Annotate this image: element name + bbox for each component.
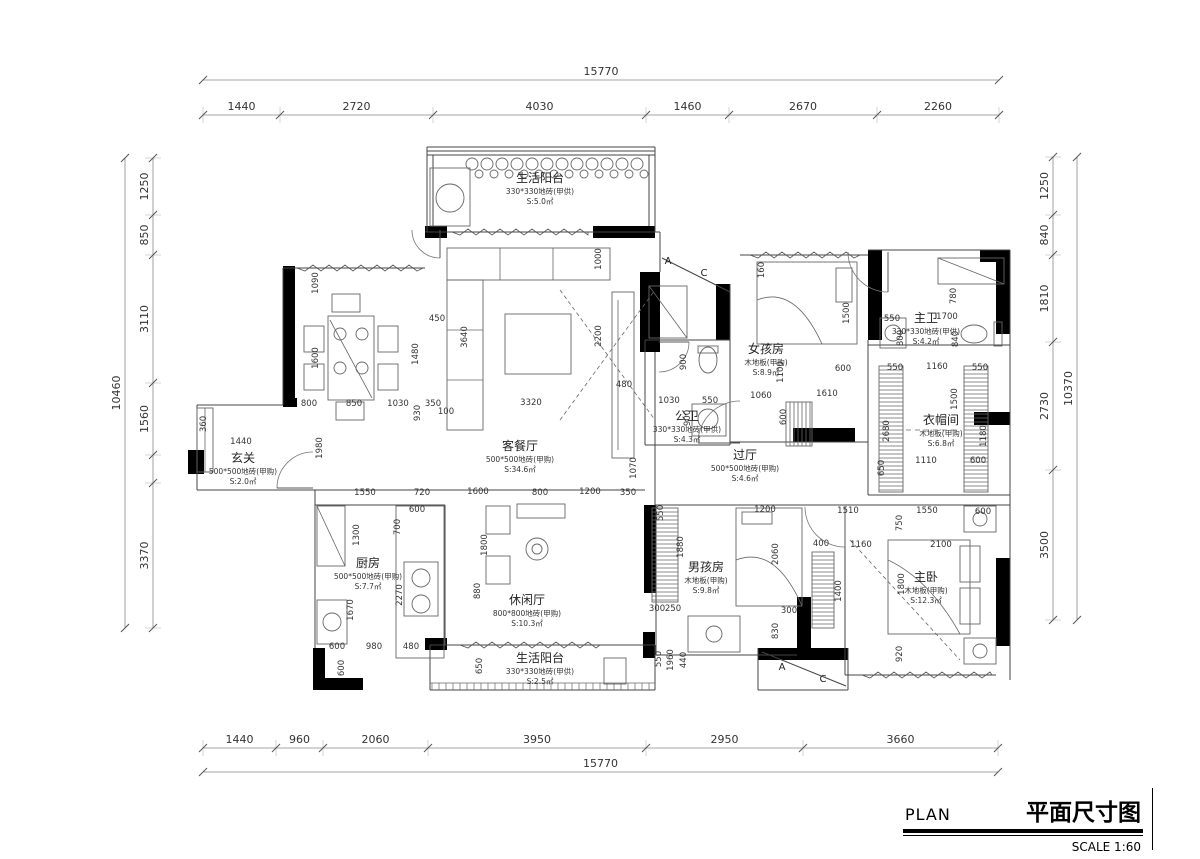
- dim-label: 1250: [1038, 172, 1051, 200]
- dim-label: 600: [329, 642, 345, 652]
- dim-label: 2680: [882, 420, 892, 442]
- furniture: [332, 294, 360, 312]
- furniture: [334, 362, 346, 374]
- dim-label: 1670: [346, 599, 356, 621]
- door-arc: [698, 401, 740, 443]
- room-finish: 330*330地砖(甲供): [506, 666, 574, 676]
- room-label: 客餐厅500*500地砖(甲购)S:34.6㎡: [486, 438, 554, 474]
- dim-label: 920: [895, 646, 905, 662]
- room-area: S:9.8㎡: [693, 586, 720, 595]
- scale-label: SCALE 1:60: [903, 840, 1143, 854]
- dim-label: 800: [301, 399, 317, 409]
- furniture: [496, 158, 508, 170]
- furniture: [486, 506, 510, 534]
- furniture: [836, 268, 852, 302]
- furniture: [532, 544, 542, 554]
- dim-label: 1200: [754, 505, 776, 515]
- dim-label: 1560: [138, 405, 151, 433]
- furniture: [447, 248, 610, 280]
- dim-label: 830: [771, 623, 781, 639]
- dim-label: 2670: [789, 100, 817, 113]
- dim-label: 2060: [362, 733, 390, 746]
- furniture: [556, 158, 568, 170]
- dim-label: 1200: [579, 487, 601, 497]
- dim-label: 1600: [467, 487, 489, 497]
- room-area: S:2.0㎡: [230, 477, 257, 486]
- dim-label: 2200: [594, 325, 604, 347]
- dim-label: 1550: [916, 506, 938, 516]
- dim-label: 1060: [750, 391, 772, 401]
- section-mark: A: [665, 256, 672, 267]
- room-name: 衣帽间: [923, 412, 959, 427]
- room-area: S:5.0㎡: [527, 197, 554, 206]
- dim-label: 600: [409, 505, 425, 515]
- dim-label: 1300: [352, 524, 362, 546]
- dim-label: 360: [199, 416, 209, 432]
- dim-label: 15770: [584, 65, 619, 78]
- room-finish: 330*330地砖(甲供): [506, 186, 574, 196]
- furniture: [610, 170, 618, 178]
- furniture: [964, 638, 996, 664]
- dim-label: 980: [366, 642, 382, 652]
- dim-label: 2720: [343, 100, 371, 113]
- room-finish: 500*500地砖(甲购): [486, 454, 554, 464]
- dim-label: 300: [649, 604, 665, 614]
- dim-label: 1500: [950, 388, 960, 410]
- room-finish: 木地板(甲购): [684, 575, 727, 585]
- room-name: 生活阳台: [516, 650, 564, 665]
- furniture: [486, 556, 510, 584]
- room-finish: 500*500地砖(甲购): [209, 466, 277, 476]
- dim-label: 1800: [897, 573, 907, 595]
- dim-chain-bottom: 1440960206039502950366015770: [199, 733, 1002, 776]
- dim-label: 3110: [138, 305, 151, 333]
- furniture: [812, 552, 834, 628]
- dim-label: 550: [656, 505, 666, 521]
- room-label: 衣帽间木地板(甲购)S:6.8㎡: [919, 412, 962, 448]
- dim-label: 3370: [138, 542, 151, 570]
- room-area: S:10.3㎡: [511, 619, 543, 628]
- room-label: 生活阳台330*330地砖(甲供)S:2.5㎡: [506, 650, 574, 686]
- furniture: [396, 506, 444, 658]
- dim-label: 1960: [666, 649, 676, 671]
- furniture: [404, 562, 438, 616]
- dim-label: 2730: [1038, 392, 1051, 420]
- furniture: [526, 538, 548, 560]
- dim-label: 1250: [138, 173, 151, 201]
- wall: [325, 678, 363, 690]
- dim-label: 720: [414, 488, 430, 498]
- wall: [797, 597, 811, 650]
- furniture: [625, 170, 633, 178]
- dim-label: 1880: [676, 536, 686, 558]
- wall: [313, 648, 325, 690]
- room-name: 男孩房: [688, 559, 724, 574]
- dim-label: 650: [475, 658, 485, 674]
- dim-label: 780: [949, 288, 959, 304]
- dim-label: 600: [779, 409, 789, 425]
- dim-label: 2270: [395, 584, 405, 606]
- dim-label: 1070: [629, 457, 639, 479]
- dim-label: 1440: [228, 100, 256, 113]
- dim-label: 2260: [924, 100, 952, 113]
- furniture: [505, 314, 571, 374]
- dim-label: 350: [620, 488, 636, 498]
- title-rule-thin: [903, 835, 1143, 836]
- dim-label: 550: [972, 363, 988, 373]
- wall: [283, 398, 297, 407]
- dim-label: 1700: [936, 312, 958, 322]
- room-name: 休闲厅: [509, 593, 545, 607]
- room-name: 主卧: [914, 570, 938, 584]
- sheet-title: 平面尺寸图: [1026, 793, 1141, 827]
- dim-label: 600: [975, 507, 991, 517]
- room-label: 厨房500*500地砖(甲购)S:7.7㎡: [334, 555, 402, 591]
- wall: [758, 648, 848, 660]
- room-label: 主卧木地板(甲购)S:12.3㎡: [904, 570, 947, 605]
- room-name: 客餐厅: [502, 438, 538, 453]
- dim-label: 1000: [594, 248, 604, 270]
- doors: [277, 230, 888, 547]
- dim-chain-top: 14402720403014602670226015770: [199, 65, 1003, 123]
- dim-label: 1460: [674, 100, 702, 113]
- room-name: 生活阳台: [516, 170, 564, 185]
- furniture: [378, 326, 398, 352]
- furniture: [317, 600, 347, 644]
- furniture: [688, 616, 740, 652]
- dim-label: 850: [346, 399, 362, 409]
- dim-label: 3500: [1038, 531, 1051, 559]
- room-name: 过厅: [733, 448, 757, 462]
- dim-label: 480: [403, 642, 419, 652]
- dim-label: 1480: [411, 343, 421, 365]
- dim-label: 600: [970, 456, 986, 466]
- furniture: [436, 184, 464, 212]
- dim-label: 1810: [1038, 285, 1051, 313]
- dim-label: 400: [813, 539, 829, 549]
- room-finish: 木地板(甲购): [904, 585, 947, 595]
- room-name: 厨房: [356, 555, 380, 570]
- wall: [716, 284, 730, 340]
- dim-label: 550: [884, 314, 900, 324]
- dim-label: 1100: [776, 361, 786, 383]
- room-finish: 800*800地砖(甲购): [493, 608, 561, 618]
- dim-label: 2950: [711, 733, 739, 746]
- floorplan-sheet: 1440272040301460267022601577014409602060…: [0, 0, 1200, 859]
- room-area: S:2.5㎡: [527, 677, 554, 686]
- furniture: [565, 170, 573, 178]
- wall: [283, 266, 295, 406]
- dim-label: 100: [438, 407, 454, 417]
- dim-label: 700: [393, 519, 403, 535]
- furniture: [616, 158, 628, 170]
- dim-label: 440: [679, 652, 689, 668]
- furniture: [356, 328, 368, 340]
- furniture: [356, 362, 368, 374]
- furniture: [511, 158, 523, 170]
- furniture: [631, 158, 643, 170]
- dim-label: 1600: [311, 347, 321, 369]
- dim-label: 650: [877, 460, 887, 476]
- title-rule-thick: [903, 829, 1143, 833]
- dim-label: 1160: [926, 362, 948, 372]
- window: [452, 229, 588, 235]
- dim-label: 850: [138, 225, 151, 246]
- room-area: S:4.3㎡: [674, 435, 701, 444]
- room-label: 玄关500*500地砖(甲购)S:2.0㎡: [209, 450, 277, 486]
- dim-label: 1440: [226, 733, 254, 746]
- furniture: [601, 158, 613, 170]
- dim-label: 930: [413, 405, 423, 421]
- furniture: [580, 170, 588, 178]
- furniture: [973, 644, 987, 658]
- dim-label: 600: [835, 364, 851, 374]
- dim-label: 1800: [480, 534, 490, 556]
- dim-label: 2100: [930, 540, 952, 550]
- title-block: PLAN 平面尺寸图 SCALE 1:60: [903, 793, 1143, 854]
- room-label: 过厅500*500地砖(甲购)S:4.6㎡: [711, 448, 779, 483]
- dim-label: 3660: [887, 733, 915, 746]
- title-block-divider: [1152, 788, 1153, 850]
- furniture: [586, 158, 598, 170]
- room-name: 女孩房: [748, 341, 784, 356]
- room-finish: 木地板(甲购): [919, 428, 962, 438]
- dim-label: 3640: [460, 326, 470, 348]
- furniture: [517, 504, 565, 518]
- dim-label: 800: [896, 330, 906, 346]
- furniture: [604, 658, 626, 684]
- room-area: S:4.2㎡: [913, 337, 940, 346]
- wall: [188, 450, 204, 474]
- dim-label: 840: [951, 331, 961, 347]
- dim-label: 960: [289, 733, 310, 746]
- furniture: [323, 613, 341, 631]
- furniture: [595, 170, 603, 178]
- furniture: [505, 170, 513, 178]
- furniture: [481, 158, 493, 170]
- dim-label: 880: [473, 583, 483, 599]
- dim-label: 3320: [520, 398, 542, 408]
- plan-label: PLAN: [905, 805, 951, 824]
- dim-chain-right: 125084018102730350010370: [1038, 153, 1081, 624]
- section-mark: C: [701, 268, 708, 279]
- dim-label: 550: [887, 363, 903, 373]
- dim-label: 15770: [583, 757, 618, 770]
- dim-label: 1180: [979, 425, 989, 447]
- room-area: S:6.8㎡: [928, 439, 955, 448]
- room-area: S:12.3㎡: [910, 596, 942, 605]
- furniture: [475, 170, 483, 178]
- section-mark: C: [820, 674, 827, 685]
- furniture: [706, 626, 722, 642]
- room-area: S:34.6㎡: [504, 465, 536, 474]
- dim-label: 300: [781, 606, 797, 616]
- room-name: 主卫: [914, 311, 938, 325]
- furniture: [378, 364, 398, 390]
- dim-label: 1090: [311, 272, 321, 294]
- dim-label: 1400: [834, 580, 844, 602]
- section-mark: A: [779, 662, 786, 673]
- room-area: S:7.7㎡: [355, 582, 382, 591]
- dim-label: 550: [654, 651, 664, 667]
- dim-label: 1980: [315, 437, 325, 459]
- dim-label: 800: [532, 488, 548, 498]
- dim-label: 3950: [523, 733, 551, 746]
- dim-label: 1030: [387, 399, 409, 409]
- dim-label: 160: [757, 262, 767, 278]
- dim-label: 10370: [1062, 371, 1075, 406]
- furniture: [526, 158, 538, 170]
- room-area: S:4.6㎡: [732, 474, 759, 483]
- furniture: [612, 292, 634, 458]
- room-label: 男孩房木地板(甲购)S:9.8㎡: [684, 559, 727, 595]
- dim-label: 550: [702, 396, 718, 406]
- furniture: [412, 569, 430, 587]
- dim-label: 600: [337, 660, 347, 676]
- dim-label: 1160: [850, 540, 872, 550]
- dim-label: 2060: [771, 543, 781, 565]
- room-label: 生活阳台330*330地砖(甲供)S:5.0㎡: [506, 170, 574, 206]
- dim-label: 10460: [110, 376, 123, 411]
- floorplan-drawing: 1440272040301460267022601577014409602060…: [0, 0, 1200, 859]
- door-arc: [277, 452, 313, 488]
- room-label: 休闲厅800*800地砖(甲购)S:10.3㎡: [493, 593, 561, 628]
- furniture: [541, 158, 553, 170]
- dim-label: 750: [895, 515, 905, 531]
- furniture: [571, 158, 583, 170]
- dim-label: 250: [665, 604, 681, 614]
- dim-label: 450: [429, 314, 445, 324]
- dim-label: 1510: [837, 506, 859, 516]
- dim-label: 1610: [816, 389, 838, 399]
- dim-label: 840: [1038, 225, 1051, 246]
- dim-label: 4030: [526, 100, 554, 113]
- room-finish: 500*500地砖(甲购): [711, 463, 779, 473]
- room-name: 玄关: [231, 450, 255, 465]
- dim-chain-left: 125085031101560337010460: [110, 154, 161, 632]
- furniture: [412, 595, 430, 613]
- dim-label: 1440: [230, 437, 252, 447]
- dim-label: 1110: [915, 456, 937, 466]
- dim-label: 900: [683, 410, 693, 426]
- furniture: [640, 170, 648, 178]
- furniture: [466, 158, 478, 170]
- dim-label: 1550: [354, 488, 376, 498]
- furniture: [490, 170, 498, 178]
- dim-label: 480: [616, 380, 632, 390]
- dim-label: 900: [679, 354, 689, 370]
- dim-label: 1500: [842, 302, 852, 324]
- room-finish: 500*500地砖(甲购): [334, 571, 402, 581]
- dim-label: 1030: [658, 396, 680, 406]
- wall: [996, 558, 1010, 646]
